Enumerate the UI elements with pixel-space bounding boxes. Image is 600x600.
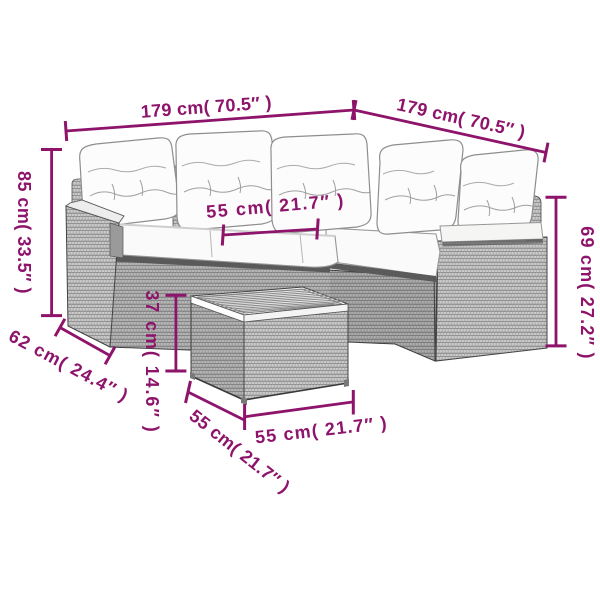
svg-text:85 cm( 33.5″ ): 85 cm( 33.5″ ): [14, 171, 34, 294]
svg-text:37 cm( 14.6″ ): 37 cm( 14.6″ ): [142, 290, 162, 433]
svg-text:69 cm( 27.2″ ): 69 cm( 27.2″ ): [577, 226, 597, 359]
